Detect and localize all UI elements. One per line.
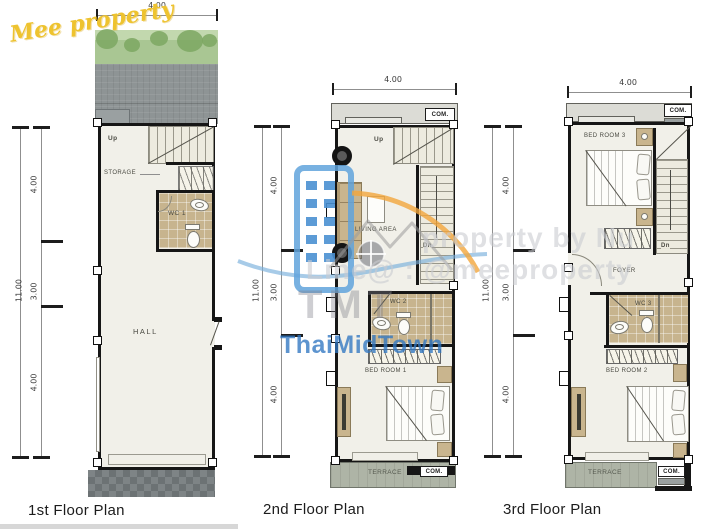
pillow-icon: [430, 413, 445, 435]
pier: [326, 203, 336, 218]
bottom-edge-strip: [0, 524, 238, 529]
p3-title: 3rd Floor Plan: [503, 501, 601, 518]
p2-label-bedroom: BED ROOM 1: [365, 368, 407, 374]
dim-tick: [216, 9, 218, 21]
p2-com-bottom: COM.: [420, 466, 448, 477]
tree-icon: [202, 34, 217, 47]
watermark-line2: Line@ : @meeproperty: [306, 254, 633, 286]
p2-dim-line-outer: [262, 127, 263, 457]
lamp-icon: [641, 133, 648, 140]
p1-segment-dim: 4.00: [30, 366, 39, 400]
dim-tick: [273, 125, 290, 128]
p2-width-dim: 4.00: [363, 75, 423, 84]
column: [564, 455, 573, 464]
p3-com-bottom: COM.: [658, 466, 685, 477]
column: [449, 120, 458, 129]
p3-wc-wall: [604, 345, 690, 348]
p3-segment-dim: 4.00: [502, 378, 511, 412]
p2-dim-line-inner: [281, 127, 282, 457]
toilet-tank-icon: [639, 310, 654, 316]
pillow-icon: [671, 413, 686, 435]
p2-top-dim-line: [333, 89, 456, 90]
p1-door-frame: [214, 345, 222, 350]
column: [208, 118, 217, 127]
p1-total-height-dim: 11.00: [15, 274, 24, 308]
dim-tick: [484, 125, 501, 128]
building-windows-icon: [306, 181, 335, 262]
column: [93, 118, 102, 127]
p3-closet: [606, 349, 678, 364]
p2-label-living: LIVING AREA: [355, 227, 397, 233]
tree-icon: [124, 38, 140, 52]
coffee-table: [367, 196, 385, 223]
dim-tick: [33, 126, 50, 129]
p1-understair-storage: [178, 166, 214, 191]
dim-tick: [505, 455, 522, 458]
pillow-icon: [636, 178, 651, 200]
p2-label-up: Up: [374, 136, 383, 143]
p1-storage-leader: [140, 174, 160, 175]
p3-label-bedroom2: BED ROOM 2: [606, 368, 648, 374]
p3-stair-arrow: [670, 170, 671, 230]
dim-tick: [281, 249, 303, 252]
p2-terrace-wall: [448, 466, 455, 475]
thaimidtown-watermark-text: ThaiMidTown: [280, 331, 443, 360]
dim-tick: [12, 126, 29, 129]
p1-label-wc: WC 1: [168, 210, 186, 217]
column: [331, 120, 340, 129]
p1-label-storage: STORAGE: [104, 170, 136, 176]
column: [449, 456, 458, 465]
column: [564, 117, 573, 126]
toilet-icon: [641, 317, 653, 333]
p2-threshold: [352, 452, 418, 461]
p3-label-bedroom3: BED ROOM 3: [584, 133, 626, 139]
column: [684, 117, 693, 126]
toilet-icon: [187, 231, 200, 248]
p2-total-height-dim: 11.00: [252, 274, 261, 308]
p3-width-dim: 4.00: [598, 78, 658, 87]
dim-tick: [273, 455, 290, 458]
p1-title: 1st Floor Plan: [28, 502, 125, 519]
watermark-line1: property by Nu: [422, 222, 635, 254]
tv-icon: [342, 394, 346, 430]
tree-icon: [177, 30, 203, 52]
p2-segment-dim: 3.00: [270, 276, 279, 310]
p1-label-hall: HALL: [133, 327, 158, 336]
dim-tick: [455, 83, 457, 95]
p1-segment-dim: 3.00: [30, 275, 39, 309]
dim-tick: [33, 456, 50, 459]
pier: [559, 297, 569, 312]
pillow-icon: [671, 389, 686, 411]
dim-tick: [567, 86, 569, 98]
dim-tick: [41, 305, 63, 308]
p3-segment-dim: 4.00: [502, 169, 511, 203]
p1-entry-threshold: [108, 454, 206, 465]
nightstand: [437, 366, 452, 383]
p2-planter: [345, 117, 402, 124]
p3-label-wc: WC 3: [635, 301, 652, 307]
p1-driveway-edge: [95, 103, 218, 104]
pier: [559, 371, 569, 386]
p3-label-dn: Dn: [661, 243, 670, 249]
p3-top-dim-line: [568, 92, 691, 93]
dim-tick: [505, 125, 522, 128]
dim-tick: [332, 83, 334, 95]
p1-stair-wall: [166, 162, 214, 165]
nightstand: [437, 442, 452, 457]
p1-wc-wall: [156, 249, 214, 252]
p1-paved-yard: [88, 470, 215, 497]
column: [208, 458, 217, 467]
column: [331, 456, 340, 465]
pier: [326, 371, 336, 386]
p3-com-ledge: [658, 478, 685, 485]
p1-segment-dim: 4.00: [30, 168, 39, 202]
nightstand: [673, 364, 687, 382]
toilet-tank-icon: [396, 312, 411, 318]
p2-terrace-wall: [407, 466, 420, 475]
sink-basin-icon: [615, 324, 624, 330]
column: [684, 455, 693, 464]
column: [93, 458, 102, 467]
p1-window: [96, 357, 100, 452]
p3-dim-line-inner: [513, 127, 514, 457]
p2-label-terrace: TERRACE: [368, 469, 402, 476]
p3-terrace-wall: [684, 460, 691, 490]
p3-label-terrace: TERRACE: [588, 469, 622, 476]
dim-tick: [41, 240, 63, 243]
p3-threshold: [585, 452, 649, 461]
p3-wc-divider: [658, 295, 660, 343]
dim-tick: [484, 455, 501, 458]
dim-tick: [12, 456, 29, 459]
toilet-tank-icon: [185, 224, 200, 230]
p1-dim-line-inner: [41, 128, 42, 458]
p3-dim-line-outer: [492, 127, 493, 457]
p2-segment-dim: 4.00: [270, 378, 279, 412]
tmt-watermark-text: TMT: [298, 283, 398, 328]
tv-icon: [577, 394, 581, 430]
dim-tick: [513, 334, 535, 337]
p2-segment-dim: 4.00: [270, 169, 279, 203]
p3-com-top: COM.: [664, 104, 692, 117]
pillow-icon: [636, 153, 651, 175]
column: [93, 336, 102, 345]
floorplan-sheet: 4.00 Up STORAGE WC 1 HALL: [0, 0, 720, 530]
column: [564, 331, 573, 340]
p2-title: 2nd Floor Plan: [263, 501, 365, 518]
sink-basin-icon: [195, 202, 204, 208]
p3-stairs-down: [656, 159, 688, 254]
pillow-icon: [430, 389, 445, 411]
p1-label-up: Up: [108, 135, 117, 142]
column: [684, 278, 693, 287]
dim-tick: [690, 86, 692, 98]
dim-tick: [254, 455, 271, 458]
tree-icon: [150, 31, 168, 46]
plant-icon: [332, 146, 352, 166]
lamp-icon: [641, 213, 648, 220]
column: [93, 266, 102, 275]
dim-tick: [254, 125, 271, 128]
